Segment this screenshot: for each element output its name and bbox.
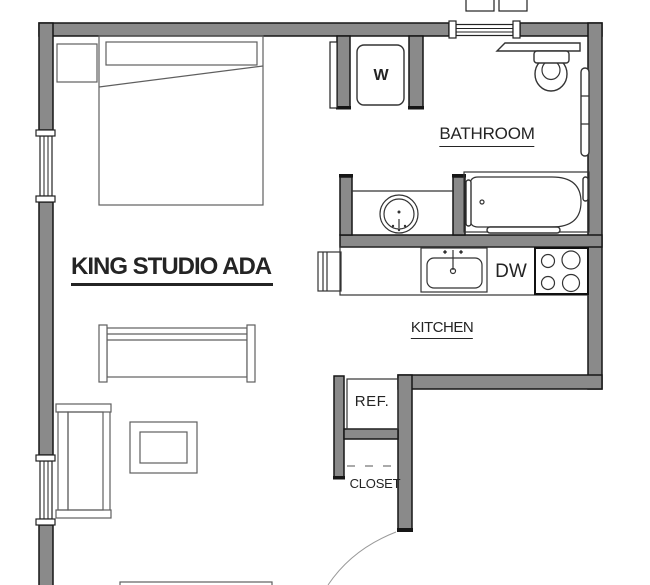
wall-cap-door-hinge [397,528,413,532]
wall-left-upper [39,23,53,130]
walls [39,23,602,585]
wall-sink-stub-right [453,177,465,235]
kitchen-sink-handle-right [459,250,463,254]
refrigerator-label: REF. [355,393,390,410]
toilet-shelf [497,43,580,51]
counter-end-unit [318,252,341,291]
window-left2-body [40,461,52,519]
floor-plan-drawing [0,0,650,585]
sofa-body [107,328,247,377]
sofa-arm-right [247,325,255,382]
bed-fold-line [99,66,263,87]
kitchen-sink-handle-left [443,250,447,254]
wall-washer-stub-left [337,36,350,108]
counter-end-unit-lines [323,252,327,291]
wall-washer-stub-right [409,36,423,108]
coffee-table-inner [140,432,187,463]
washer-label: W [373,67,388,85]
exterior-trim-left [466,0,494,11]
wall-ref-closet-stub [344,429,398,439]
floor-plan: KING STUDIO ADA BATHROOM KITCHEN DW W RE… [0,0,650,585]
window-left1-cap-top [36,130,55,136]
bathtub-bar-left [466,180,471,226]
furniture [56,36,272,585]
window-top-cap-right [513,21,520,38]
bathtub-inner [470,177,581,227]
toilet-tank [534,51,569,63]
wall-kitchen-bottom [398,375,602,389]
bathroom-label: BATHROOM [439,124,534,147]
loveseat-back [58,412,68,510]
loveseat-seat [68,412,103,510]
window-top-body [456,25,513,36]
plan-title: KING STUDIO ADA [71,253,273,286]
bed-headboard [106,42,257,65]
wall-cap-ref-strip [333,476,345,480]
bed [99,36,263,205]
entry-door-swing-arc [328,532,396,585]
kitchen-label: KITCHEN [411,319,473,339]
bathroom-sink-handle-right [404,225,406,227]
dishwasher-label: DW [495,261,527,283]
wall-closet-side [398,375,412,530]
window-left2-cap-top [36,455,55,461]
sofa-back-lines [107,334,247,340]
closet-label: CLOSET [350,476,401,491]
wall-cap-washer-right [408,106,424,110]
bathroom-door-leaf [330,42,337,108]
window-left2-cap-bottom [36,519,55,525]
wall-cap-washer-left [336,106,351,110]
bathtub-bar-right [583,177,588,201]
loveseat-arm-top [56,404,111,412]
bathtub-mat [487,227,560,233]
window-left1-body [40,136,52,196]
exterior-trim-right [499,0,527,11]
sofa-arm-left [99,325,107,382]
grab-bar [581,68,589,156]
window-left1-cap-bottom [36,196,55,202]
bathroom-sink-handle-left [392,225,394,227]
nightstand [57,44,97,82]
wall-top-left [39,23,449,36]
wall-sink-stub-left [340,177,352,235]
loveseat-arm-bottom [56,510,111,518]
kitchen-sink [421,248,487,292]
window-top-cap-left [449,21,456,38]
bathroom-sink-spout-dot [398,229,400,231]
wall-ref-strip [334,376,344,478]
bathtub-drain [480,200,484,204]
wall-right [588,23,602,389]
wall-bath-kitchen-divider [340,235,602,247]
wall-cap-sink-left [339,174,353,178]
wall-left-lower [39,525,53,585]
bathroom-sink-drain [398,211,401,214]
wall-left-middle [39,202,53,455]
